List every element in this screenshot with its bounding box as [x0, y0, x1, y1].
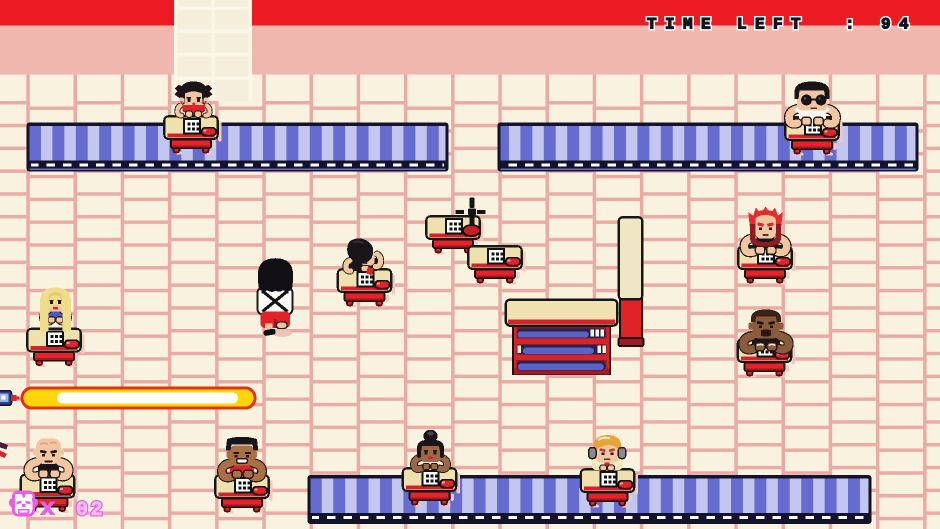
svg-text:TIME LEFT : 94: TIME LEFT : 94	[647, 16, 917, 34]
svg-text:02: 02	[76, 499, 105, 522]
